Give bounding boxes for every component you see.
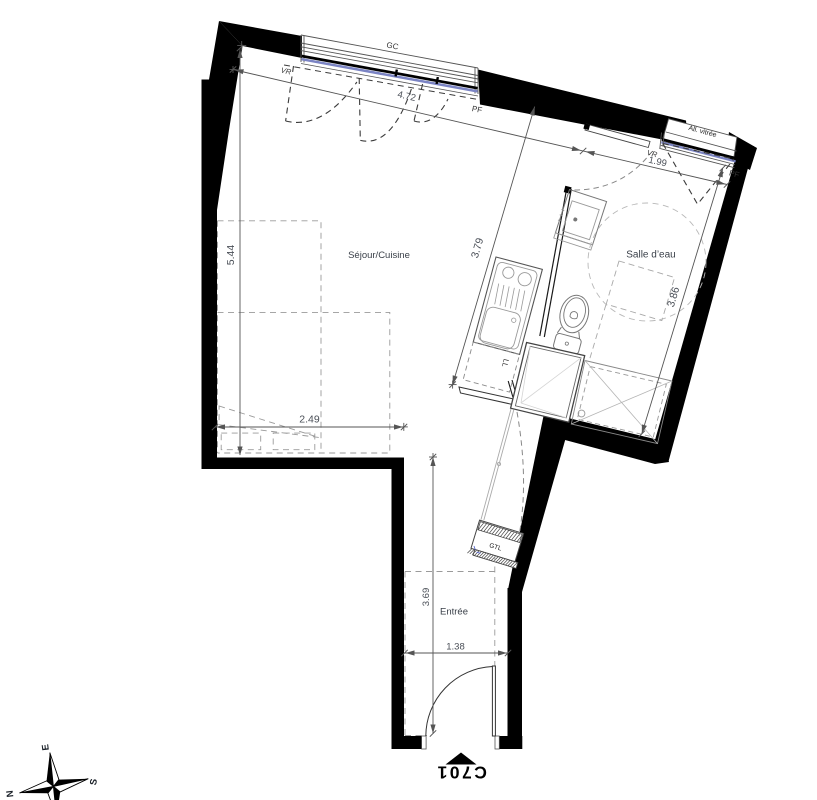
svg-text:E: E — [40, 743, 52, 751]
svg-text:C701: C701 — [435, 763, 487, 783]
svg-text:Salle d’eau: Salle d’eau — [626, 250, 675, 261]
svg-text:1.38: 1.38 — [446, 642, 465, 653]
svg-text:Entrée: Entrée — [440, 607, 468, 618]
svg-text:5.44: 5.44 — [225, 245, 237, 266]
svg-text:Séjour/Cuisine: Séjour/Cuisine — [348, 250, 410, 261]
svg-text:3.69: 3.69 — [421, 588, 432, 607]
svg-text:2.49: 2.49 — [299, 414, 320, 426]
